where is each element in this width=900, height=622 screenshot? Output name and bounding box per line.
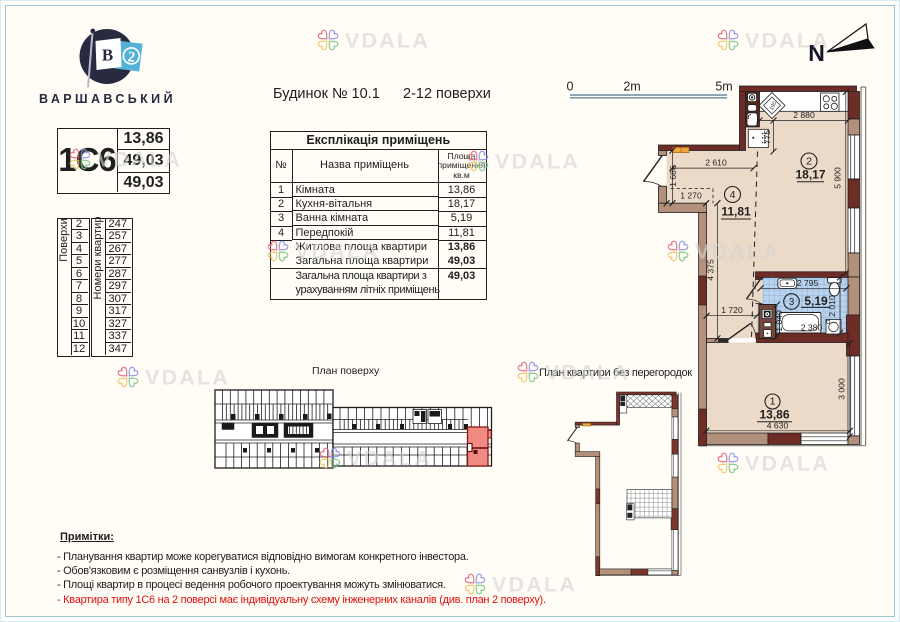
svg-text:В: В: [102, 46, 113, 65]
svg-text:ВАРШАВСЬКИЙ: ВАРШАВСЬКИЙ: [39, 91, 176, 106]
